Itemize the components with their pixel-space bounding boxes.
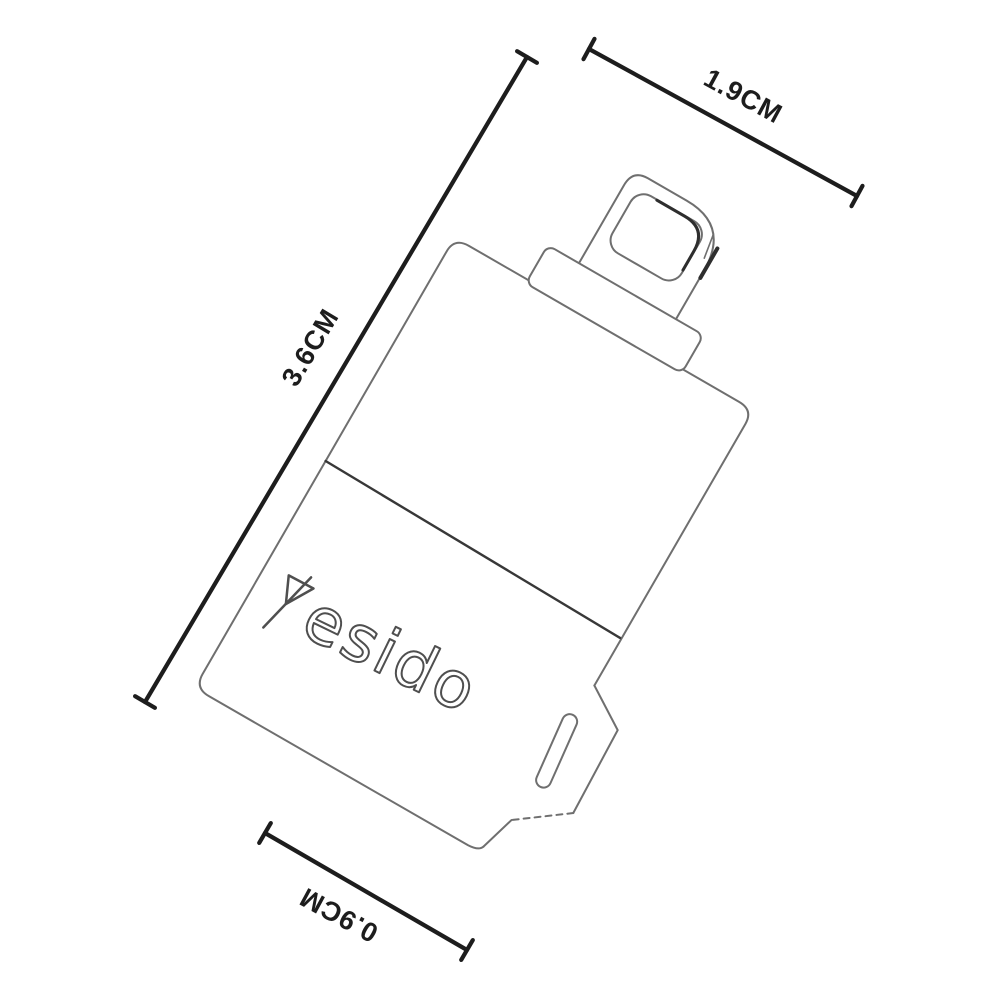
dimension-depth: 0.9CM (259, 823, 473, 960)
dimension-width-label: 1.9CM (699, 63, 788, 130)
product-dimension-diagram: esido 3.6CM 1.9CM 0.9CM (0, 0, 1000, 1000)
body-fill (195, 238, 793, 884)
diagram-canvas: esido 3.6CM 1.9CM 0.9CM (0, 0, 1000, 1000)
dimension-width: 1.9CM (584, 39, 863, 206)
adapter-sketch: esido (195, 109, 867, 883)
